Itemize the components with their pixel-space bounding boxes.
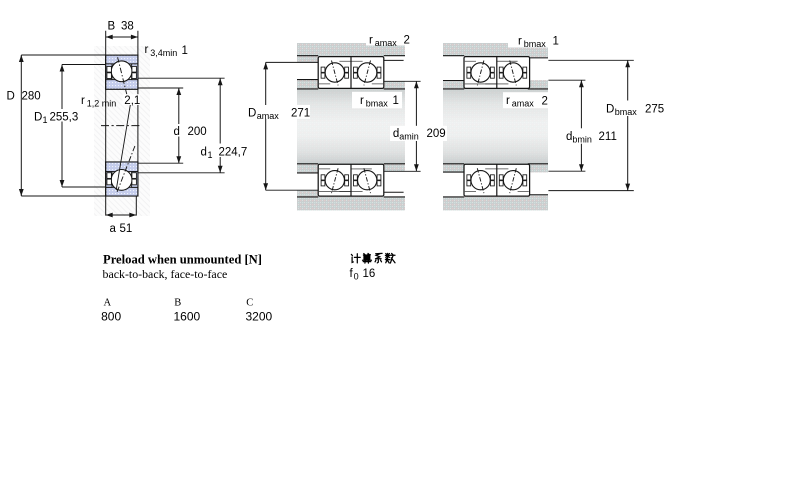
svg-text:amax: amax bbox=[512, 99, 535, 109]
svg-text:255,3: 255,3 bbox=[50, 111, 79, 123]
svg-text:3200: 3200 bbox=[246, 310, 273, 324]
svg-text:224,7: 224,7 bbox=[219, 146, 248, 158]
svg-text:280: 280 bbox=[22, 90, 41, 102]
svg-text:r: r bbox=[369, 34, 373, 46]
svg-text:1: 1 bbox=[182, 45, 188, 57]
svg-text:1,2 min: 1,2 min bbox=[87, 99, 117, 109]
svg-text:51: 51 bbox=[120, 223, 133, 235]
svg-text:2: 2 bbox=[404, 35, 410, 47]
svg-text:B: B bbox=[108, 20, 116, 32]
svg-text:r: r bbox=[81, 95, 85, 107]
svg-text:amax: amax bbox=[375, 38, 398, 48]
svg-text:bmin: bmin bbox=[572, 134, 592, 144]
svg-text:200: 200 bbox=[188, 126, 207, 138]
svg-text:1: 1 bbox=[553, 36, 559, 48]
svg-text:d: d bbox=[174, 126, 180, 138]
svg-text:amax: amax bbox=[257, 111, 280, 121]
svg-text:D: D bbox=[34, 111, 42, 123]
svg-text:bmax: bmax bbox=[524, 39, 547, 49]
svg-text:bmax: bmax bbox=[366, 98, 389, 108]
svg-text:r: r bbox=[360, 95, 364, 107]
svg-text:800: 800 bbox=[101, 310, 121, 324]
svg-text:B: B bbox=[174, 297, 181, 308]
svg-text:2: 2 bbox=[542, 95, 548, 107]
svg-text:C: C bbox=[246, 297, 253, 308]
svg-text:16: 16 bbox=[363, 268, 376, 280]
svg-text:1: 1 bbox=[208, 150, 213, 160]
svg-text:a: a bbox=[110, 223, 117, 235]
svg-text:d: d bbox=[201, 146, 207, 158]
svg-text:bmax: bmax bbox=[615, 107, 638, 117]
svg-text:amin: amin bbox=[399, 132, 419, 142]
svg-text:275: 275 bbox=[645, 103, 664, 115]
svg-text:1600: 1600 bbox=[174, 310, 201, 324]
svg-text:r: r bbox=[506, 95, 510, 107]
svg-text:209: 209 bbox=[427, 128, 446, 140]
svg-text:r: r bbox=[518, 35, 522, 47]
svg-text:211: 211 bbox=[599, 131, 617, 143]
svg-text:1: 1 bbox=[393, 95, 399, 107]
svg-text:r: r bbox=[145, 44, 149, 56]
svg-text:2,1: 2,1 bbox=[124, 95, 140, 107]
svg-text:A: A bbox=[104, 297, 112, 308]
svg-text:1: 1 bbox=[43, 115, 48, 125]
svg-text:3,4min: 3,4min bbox=[150, 48, 177, 58]
svg-text:Preload when unmounted [N]: Preload when unmounted [N] bbox=[103, 253, 262, 267]
svg-text:D: D bbox=[606, 103, 614, 115]
svg-text:0: 0 bbox=[354, 272, 359, 282]
svg-text:38: 38 bbox=[121, 20, 134, 32]
svg-text:D: D bbox=[7, 90, 15, 102]
svg-text:back-to-back, face-to-face: back-to-back, face-to-face bbox=[103, 267, 228, 281]
svg-text:271: 271 bbox=[291, 107, 310, 119]
svg-text:D: D bbox=[248, 107, 256, 119]
